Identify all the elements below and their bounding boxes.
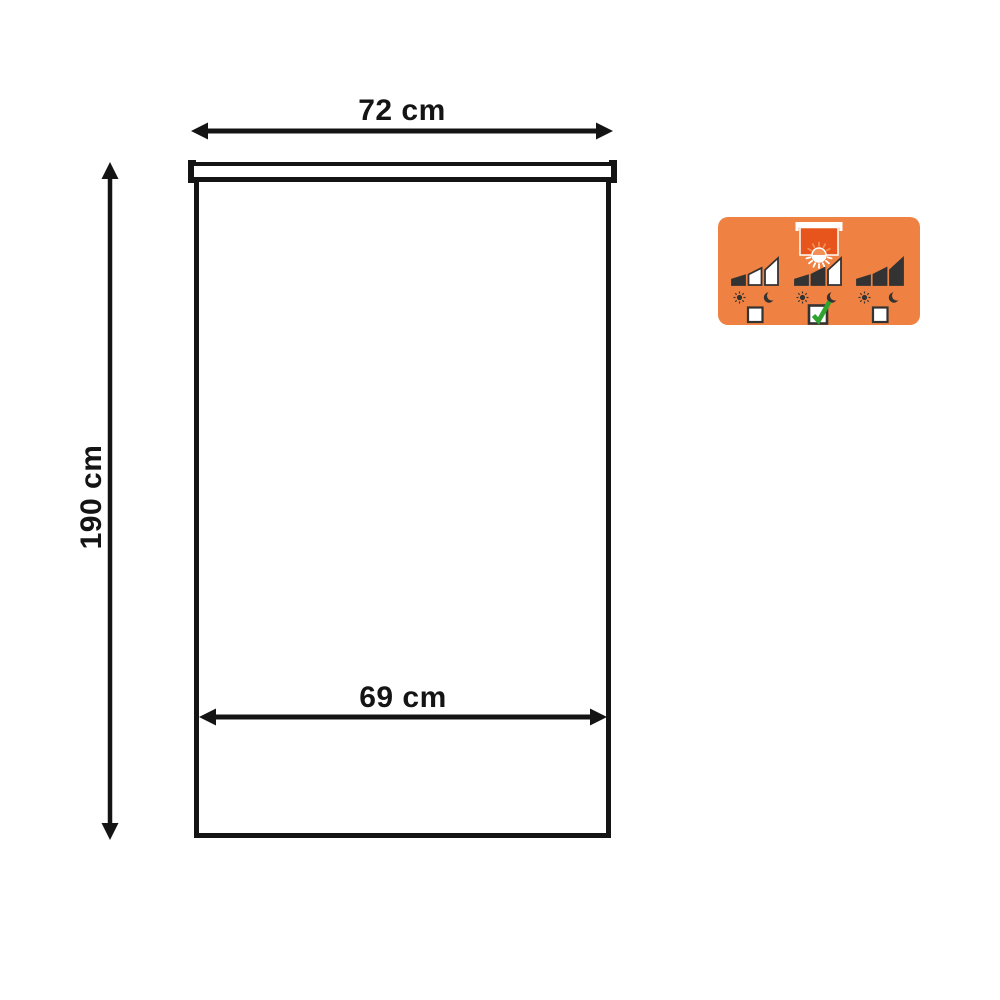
light-level-bars-icon (795, 258, 841, 285)
height-dimension-arrow (100, 161, 120, 841)
light-level-option (795, 255, 842, 325)
moon-icon (826, 291, 839, 303)
roller-blind-fabric-panel (194, 177, 611, 838)
sun-icon (734, 292, 746, 304)
moon-icon (764, 291, 777, 303)
width-dimension-arrow (190, 121, 614, 141)
light-level-option (732, 255, 779, 325)
checkbox (748, 308, 763, 323)
light-level-options (718, 255, 920, 325)
inner-width-dimension-arrow (197, 707, 609, 727)
sun-icon (858, 292, 870, 304)
product-dimension-diagram: 72 cm 190 cm 69 cm (0, 0, 1000, 1000)
checkbox (873, 308, 888, 323)
mini-cassette-bar (797, 222, 841, 228)
moon-icon (888, 291, 901, 303)
light-level-bars-icon (857, 258, 903, 285)
light-level-bars-icon (732, 258, 778, 285)
sun-icon (796, 292, 808, 304)
light-level-option (857, 255, 904, 325)
light-filtering-badge (718, 217, 920, 325)
